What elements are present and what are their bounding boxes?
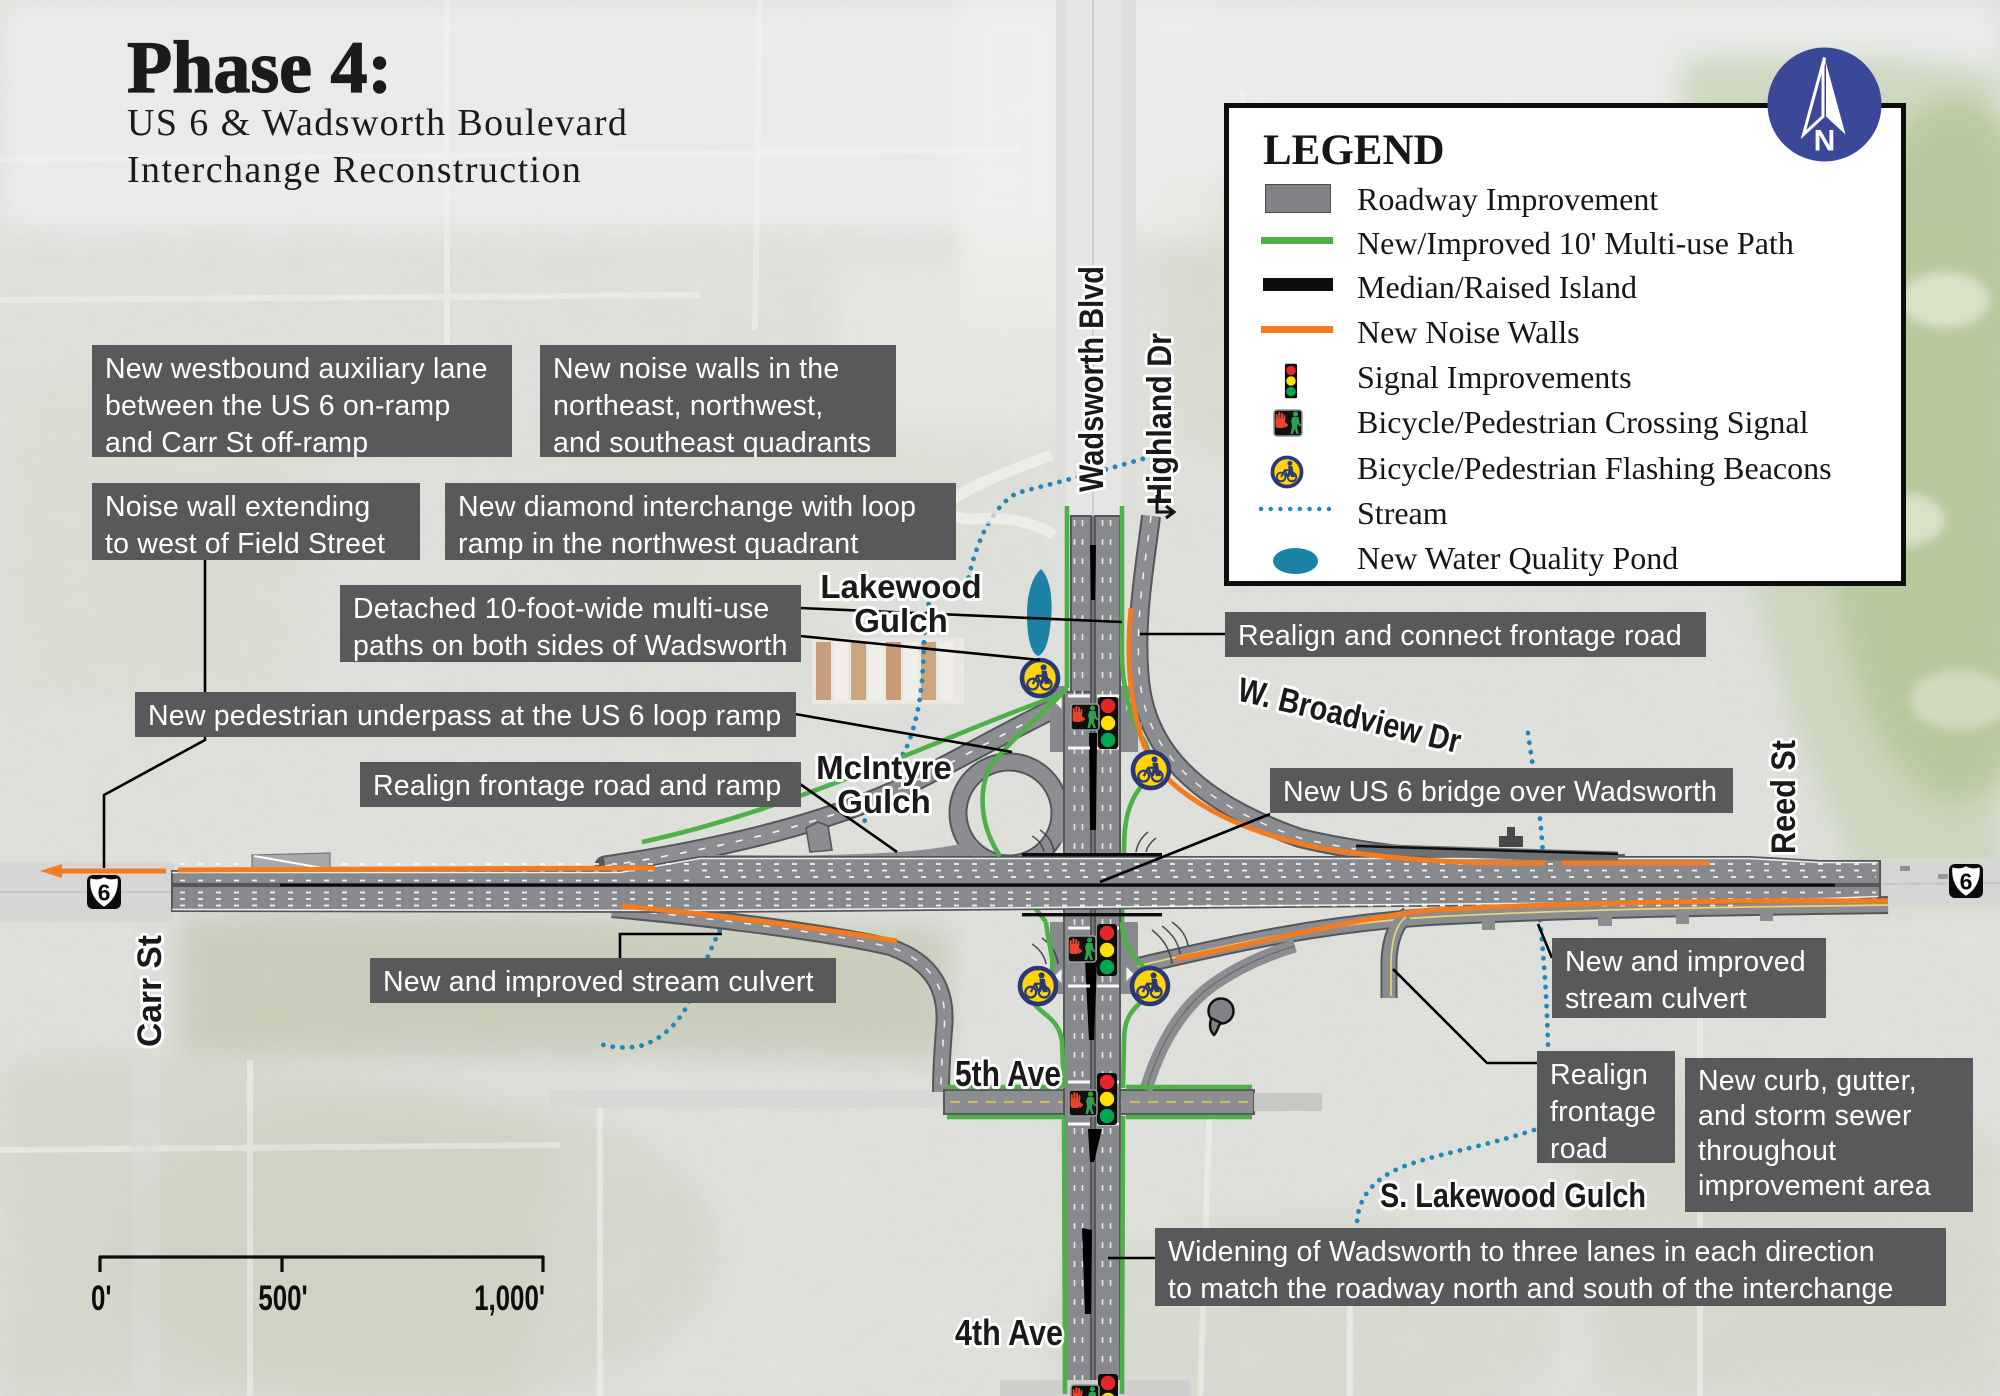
svg-text:0': 0' — [91, 1278, 112, 1318]
svg-text:5th Ave: 5th Ave — [955, 1053, 1061, 1094]
svg-text:Gulch: Gulch — [854, 602, 948, 639]
svg-text:S. Lakewood Gulch: S. Lakewood Gulch — [1380, 1177, 1646, 1215]
svg-text:Lakewood: Lakewood — [820, 568, 981, 605]
svg-text:500': 500' — [258, 1278, 307, 1318]
svg-text:Carr St: Carr St — [131, 935, 169, 1047]
svg-text:Reed St: Reed St — [1765, 740, 1803, 854]
svg-text:Wadsworth Blvd: Wadsworth Blvd — [1073, 266, 1111, 492]
svg-text:Gulch: Gulch — [837, 783, 931, 820]
svg-text:McIntyre: McIntyre — [816, 749, 952, 786]
svg-text:4th Ave: 4th Ave — [955, 1312, 1063, 1353]
svg-text:Highland Dr: Highland Dr — [1141, 333, 1179, 505]
svg-text:N: N — [1814, 125, 1836, 158]
svg-text:1,000': 1,000' — [474, 1278, 545, 1318]
